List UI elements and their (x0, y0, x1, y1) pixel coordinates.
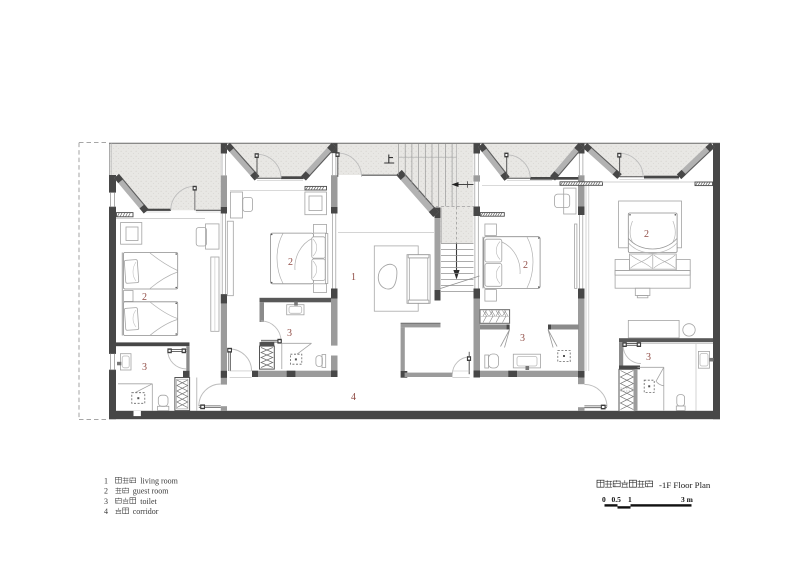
svg-text:1: 1 (351, 272, 356, 283)
svg-text:guest room: guest room (133, 487, 170, 496)
svg-text:2: 2 (104, 487, 108, 496)
svg-text:3: 3 (104, 497, 108, 506)
svg-text:4: 4 (104, 507, 108, 516)
svg-text:3: 3 (646, 352, 651, 363)
svg-text:2: 2 (142, 292, 147, 303)
svg-text:0: 0 (602, 495, 606, 504)
svg-text:1: 1 (104, 477, 108, 486)
svg-text:4: 4 (351, 392, 356, 403)
svg-text:-1F Floor Plan: -1F Floor Plan (659, 480, 711, 490)
svg-text:corridor: corridor (133, 507, 159, 516)
svg-text:3: 3 (287, 328, 292, 339)
svg-text:2: 2 (288, 257, 293, 268)
svg-text:0.5: 0.5 (612, 495, 622, 504)
svg-text:3: 3 (520, 333, 525, 344)
svg-text:living room: living room (140, 477, 178, 486)
svg-text:toilet: toilet (140, 497, 157, 506)
svg-text:3: 3 (142, 362, 147, 373)
svg-text:2: 2 (523, 260, 528, 271)
svg-text:1: 1 (628, 495, 632, 504)
svg-text:2: 2 (644, 229, 649, 240)
svg-text:3 m: 3 m (681, 495, 694, 504)
